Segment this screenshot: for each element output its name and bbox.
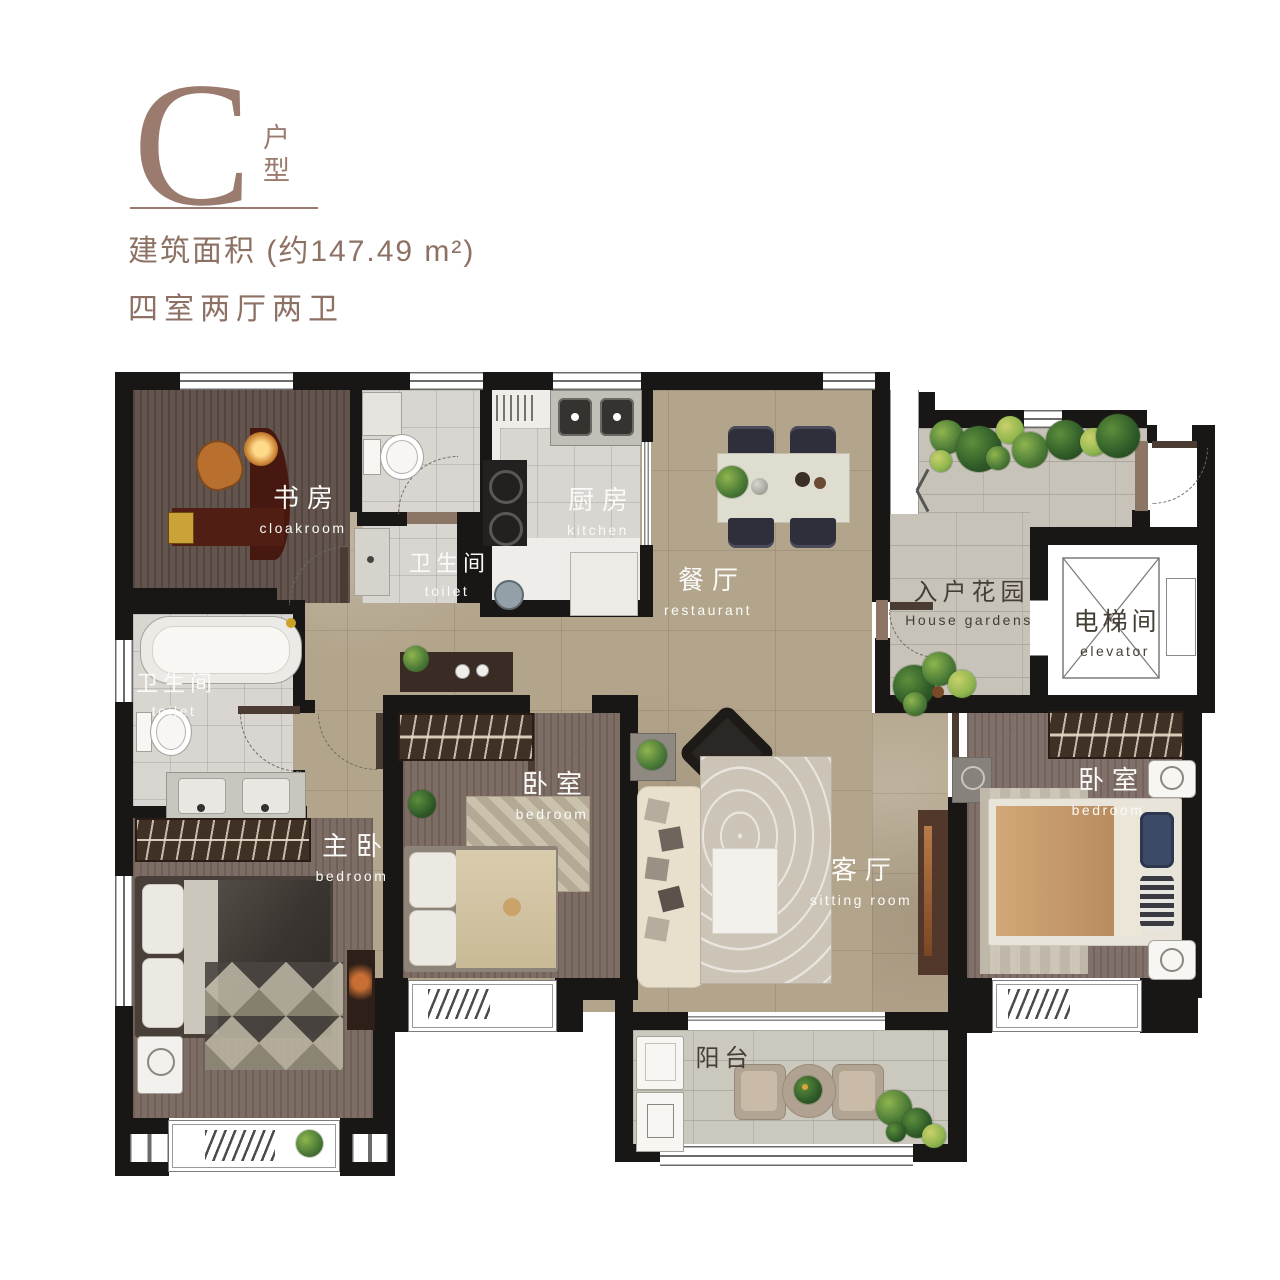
dining-chair bbox=[728, 426, 774, 456]
label-dining: 餐厅restaurant bbox=[664, 560, 752, 618]
dish-rack bbox=[496, 395, 534, 421]
sliding-door-balcony bbox=[688, 1014, 885, 1023]
table-dish bbox=[814, 477, 826, 489]
label-kitchen: 厨房kitchen bbox=[560, 480, 636, 538]
radiator-glyph bbox=[428, 989, 490, 1019]
wardrobe bbox=[135, 818, 311, 862]
bed-pillow bbox=[409, 910, 457, 966]
shower-tray bbox=[362, 392, 402, 436]
window bbox=[823, 372, 875, 390]
wall-segment bbox=[1197, 543, 1215, 713]
lightwell bbox=[890, 390, 919, 514]
washer-drum bbox=[147, 1048, 175, 1076]
chair-cushion bbox=[839, 1071, 875, 1111]
coffee-table bbox=[712, 848, 778, 934]
sink-drain-dot bbox=[571, 413, 579, 421]
bed-pillow-zebra bbox=[1140, 874, 1174, 930]
cabinet-ring bbox=[961, 766, 985, 790]
balcony-plant bbox=[922, 1124, 946, 1148]
bed-pillow bbox=[409, 852, 457, 908]
sideboard-bowl bbox=[476, 664, 489, 677]
window bbox=[180, 372, 293, 390]
dining-chair bbox=[728, 518, 774, 548]
balcony-window bbox=[660, 1146, 913, 1166]
shelf-books bbox=[168, 512, 194, 544]
window bbox=[352, 1134, 388, 1162]
door-leaf-master bbox=[376, 713, 383, 769]
wall-segment bbox=[872, 372, 890, 602]
wall-segment bbox=[373, 978, 395, 1136]
sofa-pillow bbox=[645, 857, 670, 882]
entry-door-jamb bbox=[1135, 441, 1148, 511]
bed-blanket bbox=[996, 806, 1114, 936]
sofa-pillow bbox=[644, 916, 669, 941]
page: { "header": { "type_letter": "C", "type_… bbox=[0, 0, 1280, 1280]
wall-segment bbox=[583, 978, 638, 1000]
radiator-glyph bbox=[205, 1130, 275, 1161]
desk-lamp bbox=[244, 432, 278, 466]
window bbox=[553, 372, 641, 390]
wall-segment bbox=[640, 545, 653, 617]
tv-console bbox=[918, 810, 948, 975]
balcony-plant bbox=[886, 1122, 906, 1142]
garden-pot bbox=[932, 686, 944, 698]
wall-segment bbox=[875, 638, 890, 695]
sofa-pillow bbox=[644, 798, 670, 824]
wall-segment bbox=[357, 512, 407, 526]
garden-plant bbox=[948, 670, 976, 698]
wall-segment bbox=[1132, 510, 1150, 545]
fridge bbox=[570, 552, 638, 616]
label-bedroom-middle: 卧室bedroom bbox=[514, 764, 590, 822]
vanity-faucet bbox=[261, 804, 269, 812]
bed-pillow-navy bbox=[1140, 812, 1174, 868]
dresser-glow bbox=[349, 960, 372, 1004]
entry-door-leaf bbox=[1152, 441, 1197, 448]
side-table-plant bbox=[637, 740, 667, 770]
table-sphere bbox=[751, 478, 768, 495]
sideboard-plant bbox=[403, 646, 429, 672]
label-master: 主卧bedroom bbox=[314, 826, 390, 884]
label-toilet-top: 卫生间toilet bbox=[404, 546, 490, 599]
tv-screen bbox=[924, 826, 932, 956]
label-balcony: 阳台 bbox=[691, 1038, 754, 1073]
label-study: 书房cloakroom bbox=[259, 478, 346, 536]
burner bbox=[489, 512, 523, 546]
bed-pillow bbox=[142, 958, 184, 1028]
wall-segment bbox=[390, 695, 530, 713]
bed-rug bbox=[205, 962, 343, 1070]
dining-chair bbox=[790, 518, 836, 548]
wardrobe bbox=[398, 713, 534, 761]
nightstand-ring bbox=[1160, 948, 1184, 972]
garden-plant bbox=[1012, 432, 1048, 468]
wall-segment bbox=[1030, 652, 1048, 695]
window bbox=[410, 372, 483, 390]
wall-segment bbox=[1030, 527, 1215, 545]
bath-faucet bbox=[286, 618, 296, 628]
label-elevator: 电梯间 elevator bbox=[1069, 602, 1160, 659]
toilet-tank bbox=[363, 439, 381, 475]
wall-segment bbox=[615, 1000, 633, 1162]
flower-dot bbox=[802, 1084, 808, 1090]
dining-chair bbox=[790, 426, 836, 456]
door-leaf-toilet-left bbox=[238, 706, 300, 714]
label-bedroom-right: 卧室bedroom bbox=[1070, 760, 1146, 818]
table-plant bbox=[716, 466, 748, 498]
sofa-pillow bbox=[658, 826, 683, 851]
wardrobe bbox=[1048, 711, 1184, 759]
elevator-counterweight bbox=[1166, 578, 1196, 656]
toilet-bowl bbox=[380, 434, 424, 480]
bed-pillow bbox=[142, 884, 184, 954]
window bbox=[130, 1134, 169, 1162]
vanity-faucet bbox=[197, 804, 205, 812]
floor-plan: 书房cloakroom 卫生间toilet 厨房kitchen 餐厅restau… bbox=[0, 0, 1280, 1280]
table-dish bbox=[795, 472, 810, 487]
nightstand-ring bbox=[1160, 766, 1184, 790]
bay-plant bbox=[296, 1130, 323, 1157]
wall-segment bbox=[115, 372, 133, 1136]
label-living: 客厅sitting room bbox=[810, 850, 912, 908]
radiator-glyph bbox=[1008, 989, 1070, 1019]
garden-plant bbox=[1096, 414, 1140, 458]
window bbox=[115, 876, 133, 1006]
sideboard-bowl bbox=[455, 664, 470, 679]
garden-plant bbox=[930, 450, 952, 472]
teddy-bear bbox=[503, 898, 521, 916]
balcony-basin bbox=[647, 1104, 674, 1138]
garden-plant bbox=[903, 692, 927, 716]
wall-segment bbox=[948, 797, 967, 983]
bed-sheet-fold bbox=[1114, 806, 1142, 936]
wall-segment bbox=[555, 978, 583, 1032]
label-garden: 入户花园 House gardens bbox=[905, 572, 1032, 628]
room-plant bbox=[408, 790, 436, 818]
washer-lid bbox=[645, 1043, 676, 1081]
chair-cushion bbox=[741, 1071, 777, 1111]
burner bbox=[489, 470, 523, 504]
table-flowers bbox=[794, 1076, 822, 1104]
vanity-faucet bbox=[367, 556, 374, 563]
wall-segment bbox=[115, 600, 305, 614]
label-toilet-left: 卫生间toilet bbox=[131, 666, 217, 719]
door-pocket-garden bbox=[876, 600, 888, 640]
wall-segment bbox=[948, 978, 992, 1033]
sink-drain-dot bbox=[613, 413, 621, 421]
garden-plant bbox=[986, 446, 1010, 470]
sliding-door-kitchen bbox=[642, 442, 651, 545]
wall-segment bbox=[350, 390, 362, 512]
wall-segment bbox=[948, 1030, 967, 1162]
pan bbox=[494, 580, 524, 610]
